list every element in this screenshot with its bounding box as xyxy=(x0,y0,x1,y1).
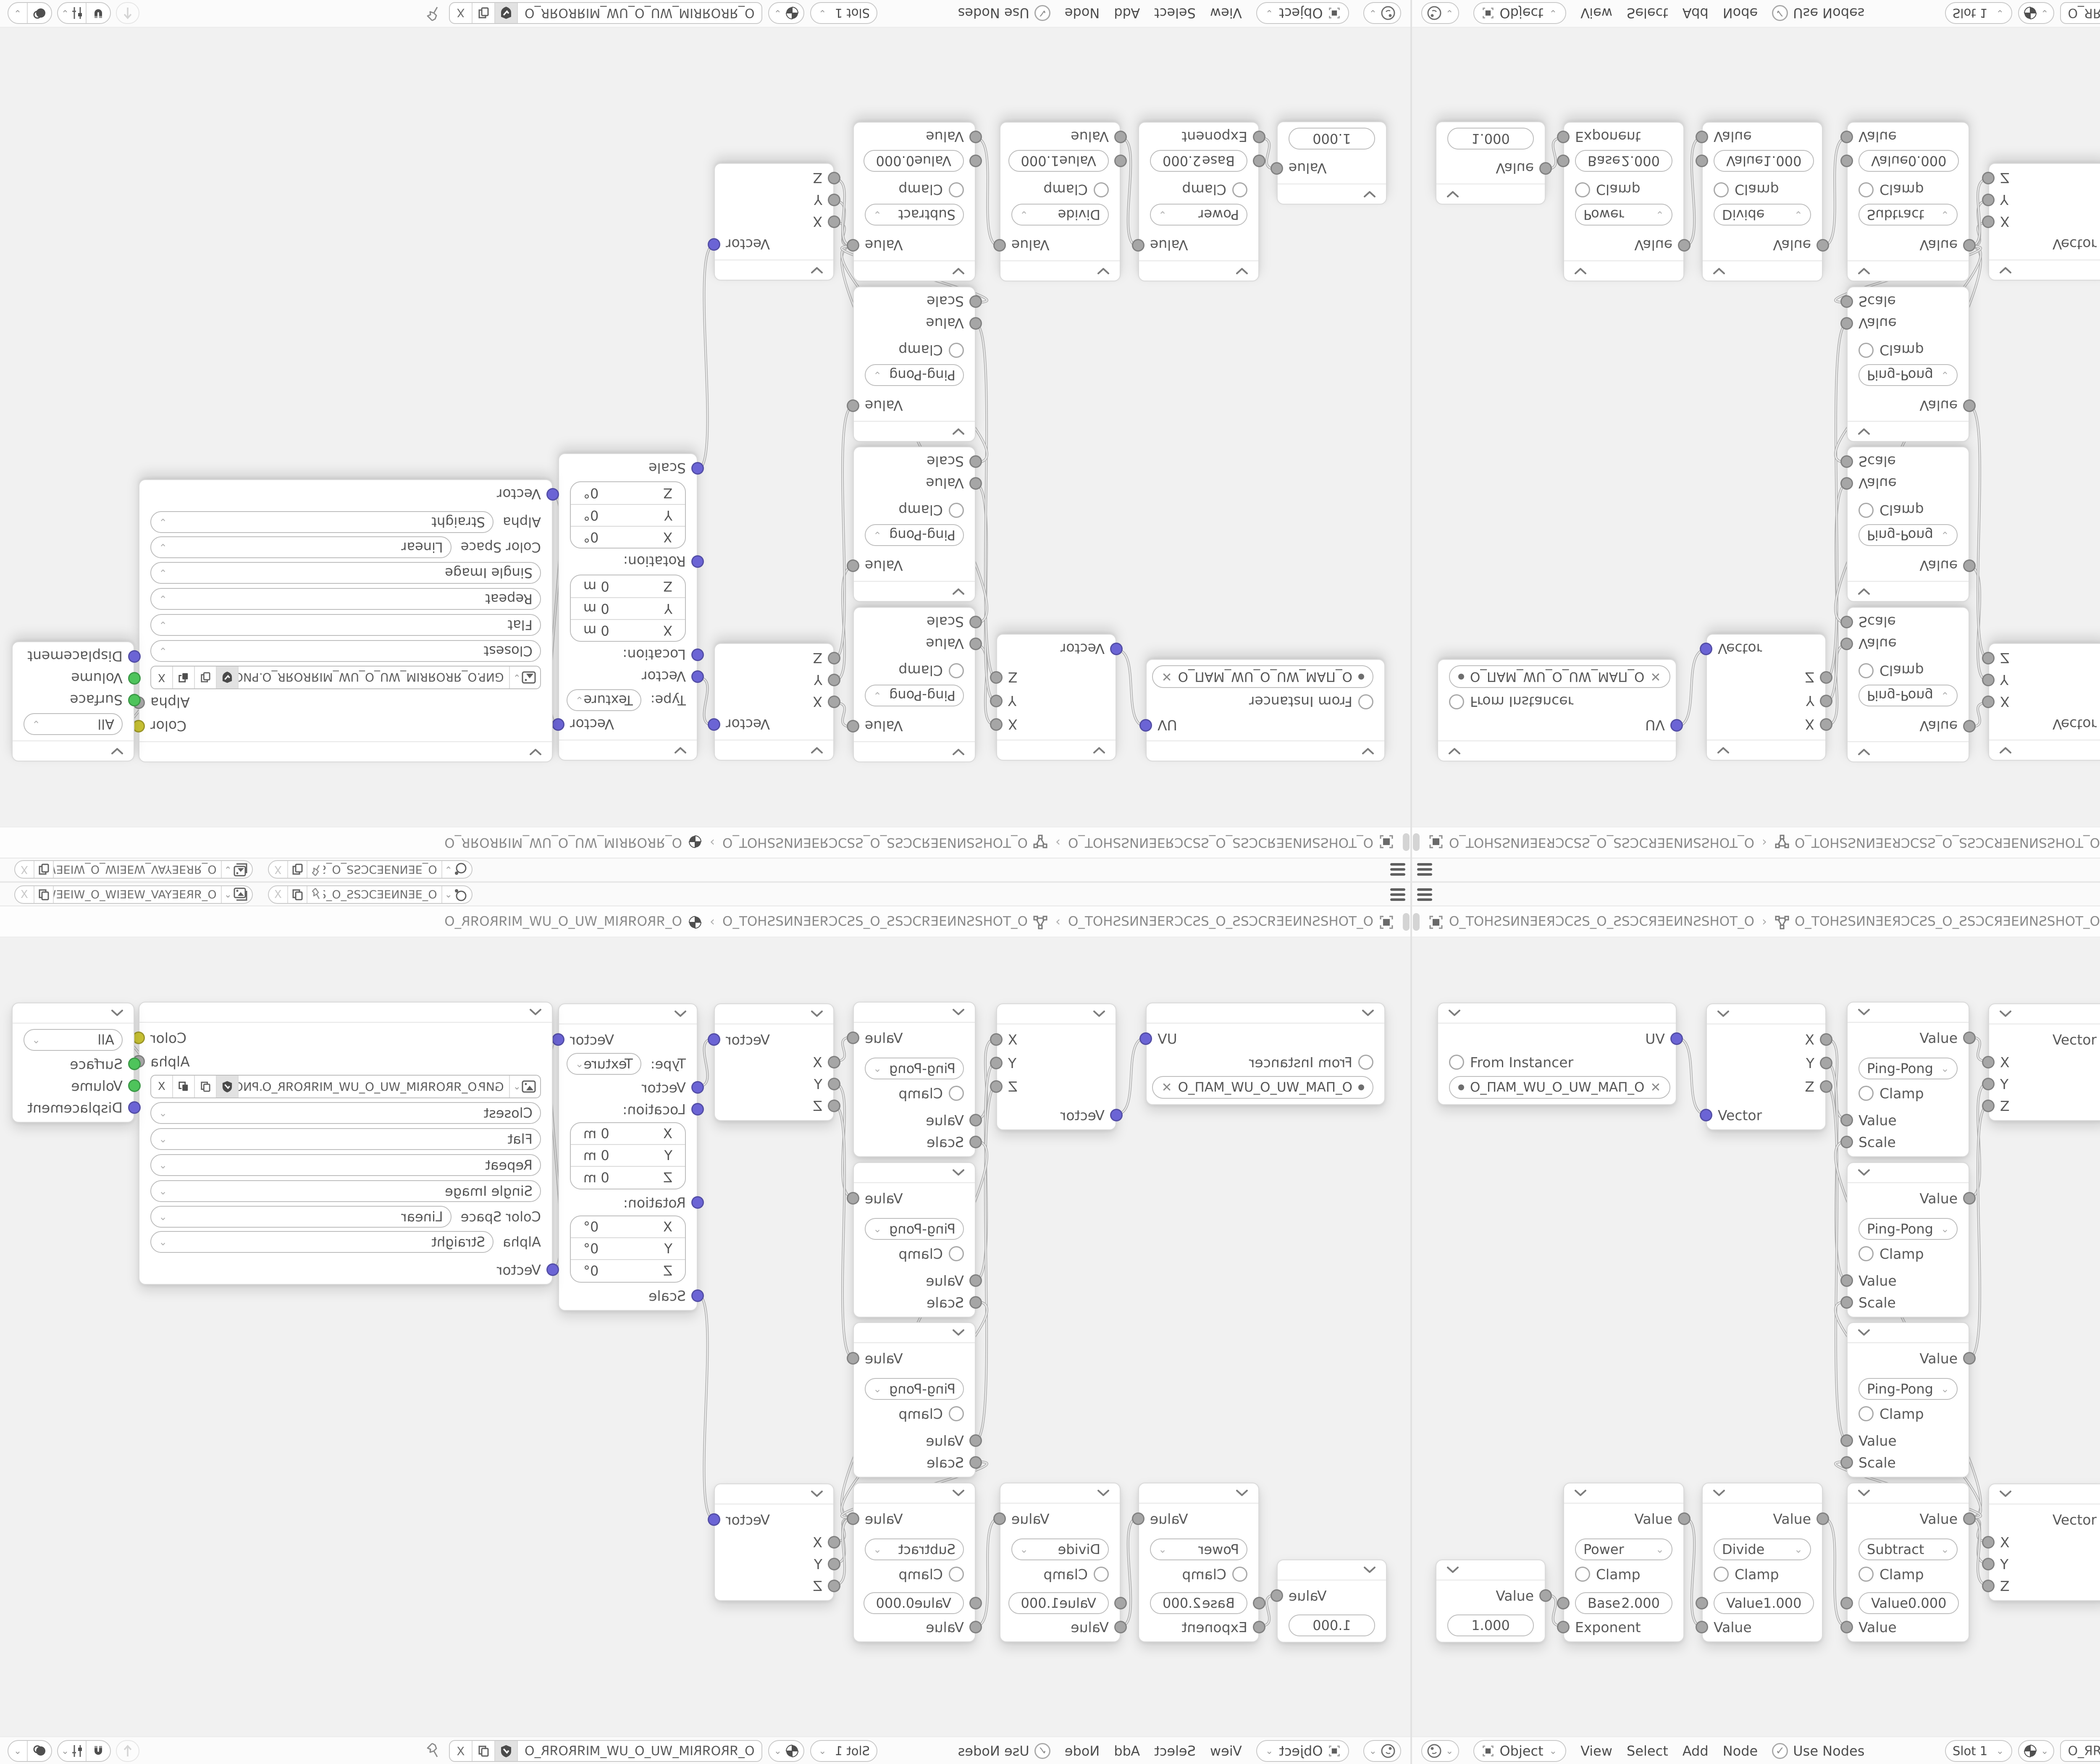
value-socket[interactable] xyxy=(969,638,982,650)
editor-type-button[interactable]: ⌄ xyxy=(1421,1740,1459,1762)
value-node[interactable]: Value1.000 xyxy=(1436,1559,1546,1643)
material-output-node[interactable]: All⌄SurfaceVolumeDisplacement xyxy=(12,1003,134,1123)
node-editor-canvas[interactable]: UVFrom InstancerO_ПAM_WU_O_UW_MAП_O✕XYZV… xyxy=(0,27,1410,827)
math-ping-pong-3-node[interactable]: ValuePing-Pong⌄ClampValueScale xyxy=(1847,286,1969,442)
fake-user-shield-icon[interactable] xyxy=(217,1076,239,1097)
vector-socket[interactable] xyxy=(691,648,704,661)
value-socket[interactable] xyxy=(1840,131,1853,143)
value-socket[interactable] xyxy=(847,720,859,732)
vector-socket[interactable] xyxy=(1139,1032,1152,1045)
menu-node[interactable]: Node xyxy=(1065,1743,1100,1759)
value-socket[interactable] xyxy=(990,718,1003,731)
value-socket[interactable] xyxy=(828,1078,840,1090)
math-ping-pong-1-node[interactable]: ValuePing-Pong⌄ClampValueScale xyxy=(1847,607,1969,762)
node-collapse-chevron-icon[interactable] xyxy=(715,260,833,280)
value-socket[interactable] xyxy=(1114,155,1127,167)
unlink-image-icon[interactable]: X xyxy=(151,667,173,688)
material-name-field[interactable]: O_ЯROЯRIM_WU_O_UW_MIЯROЯR_O X xyxy=(2060,2,2100,24)
math-divide-node[interactable]: ValueDivide⌄ClampValue1.000Value xyxy=(1702,122,1823,281)
fake-user-shield-icon[interactable] xyxy=(495,3,518,23)
value-socket[interactable] xyxy=(1820,1080,1832,1093)
value-socket[interactable] xyxy=(828,1580,840,1592)
new-image-copy-icon[interactable] xyxy=(195,1076,217,1097)
value-socket[interactable] xyxy=(1132,1512,1144,1525)
material-name-field[interactable]: O_ЯROЯRIM_WU_O_UW_MIЯROЯR_O X xyxy=(449,2,762,24)
value-socket[interactable] xyxy=(1840,1274,1853,1287)
vector-socket[interactable] xyxy=(691,670,704,683)
menu-node[interactable]: Node xyxy=(1723,5,1758,21)
node-editor-canvas[interactable]: UVFrom InstancerO_ПAM_WU_O_UW_MAП_O✕XYZV… xyxy=(0,937,1410,1737)
value-socket[interactable] xyxy=(847,239,859,252)
node-collapse-chevron-icon[interactable] xyxy=(1989,260,2100,280)
new-material-copy-icon[interactable] xyxy=(472,1741,495,1761)
value-socket[interactable] xyxy=(1696,155,1708,167)
image-texture-node[interactable]: ColorAlpha ⌄ GИP.O_ЯROЯRIM_WU_O_UW_MIЯRO… xyxy=(139,479,553,762)
value-socket[interactable] xyxy=(1678,1512,1690,1525)
browse-material-button[interactable]: ⌄ xyxy=(768,1740,804,1762)
value-socket[interactable] xyxy=(990,695,1003,707)
node-collapse-chevron-icon[interactable] xyxy=(1564,260,1683,281)
value-socket[interactable] xyxy=(990,1057,1003,1069)
overlays-icon[interactable] xyxy=(27,3,51,23)
node-collapse-chevron-icon[interactable] xyxy=(715,1484,833,1504)
node-collapse-chevron-icon[interactable] xyxy=(1703,1483,1822,1504)
overlays-dropdown[interactable]: ⌄ xyxy=(8,3,27,23)
node-collapse-chevron-icon[interactable] xyxy=(854,1483,975,1504)
fake-user-shield-icon[interactable] xyxy=(495,1741,518,1761)
value-socket[interactable] xyxy=(1820,1057,1832,1069)
node-collapse-chevron-icon[interactable] xyxy=(1848,1003,1969,1023)
vector-socket[interactable] xyxy=(1670,1032,1683,1045)
shader-mode-dropdown[interactable]: Object ⌄ xyxy=(1256,2,1349,24)
math-divide-node[interactable]: ValueDivide⌄ClampValue1.000Value xyxy=(1000,122,1121,281)
menu-add[interactable]: Add xyxy=(1683,5,1709,21)
math-power-node[interactable]: ValuePower⌄ClampBase2.000Exponent xyxy=(1138,1483,1259,1642)
editor-type-button[interactable]: ⌄ xyxy=(1421,2,1459,24)
value-socket[interactable] xyxy=(1270,1589,1283,1602)
node-collapse-chevron-icon[interactable] xyxy=(854,1003,975,1023)
value-socket[interactable] xyxy=(1253,1597,1265,1609)
image-filename[interactable]: GИP.O_ЯROЯRIM_WU_O_UW_MIЯROЯR_O.PNG xyxy=(239,671,509,685)
node-collapse-chevron-icon[interactable] xyxy=(715,740,833,760)
value-socket[interactable] xyxy=(969,1434,982,1447)
browse-material-button[interactable]: ⌄ xyxy=(768,2,804,24)
shader-socket[interactable] xyxy=(128,1058,141,1070)
combine-xyz-1-node[interactable]: VectorXYZ xyxy=(1988,643,2100,761)
value-socket[interactable] xyxy=(1678,239,1690,252)
snap-options-icon[interactable]: ⌄ xyxy=(58,1741,86,1761)
value-socket[interactable] xyxy=(828,674,840,686)
value-socket[interactable] xyxy=(1557,1621,1570,1633)
math-ping-pong-2-node[interactable]: ValuePing-Pong⌄ClampValueScale xyxy=(853,446,976,602)
shader-mode-dropdown[interactable]: Object ⌄ xyxy=(1473,1740,1566,1762)
menu-view[interactable]: View xyxy=(1210,1743,1242,1759)
node-collapse-chevron-icon[interactable] xyxy=(1848,581,1969,601)
node-collapse-chevron-icon[interactable] xyxy=(1707,1004,1825,1024)
fake-user-shield-icon[interactable] xyxy=(217,667,239,688)
new-image-copy-icon[interactable] xyxy=(195,667,217,688)
vector-socket[interactable] xyxy=(546,1263,559,1276)
node-collapse-chevron-icon[interactable] xyxy=(1564,1483,1683,1504)
value-socket[interactable] xyxy=(1982,674,1995,686)
value-socket[interactable] xyxy=(1820,1033,1832,1046)
node-collapse-chevron-icon[interactable] xyxy=(1989,1004,2100,1024)
slot-dropdown[interactable]: Slot 1 ⌄ xyxy=(810,2,877,24)
node-collapse-chevron-icon[interactable] xyxy=(1707,740,1825,760)
combine-xyz-2-node[interactable]: VectorXYZ xyxy=(1988,1483,2100,1601)
node-collapse-chevron-icon[interactable] xyxy=(715,1004,833,1024)
value-socket[interactable] xyxy=(990,671,1003,684)
value-socket[interactable] xyxy=(1840,616,1853,628)
value-socket[interactable] xyxy=(1114,131,1127,143)
editor-type-button[interactable]: ⌄ xyxy=(1363,1740,1401,1762)
value-socket[interactable] xyxy=(1820,718,1832,731)
vector-socket[interactable] xyxy=(708,718,720,731)
menu-node[interactable]: Node xyxy=(1723,1743,1758,1759)
material-name-value[interactable]: O_ЯROЯRIM_WU_O_UW_MIЯROЯR_O xyxy=(518,6,761,21)
uv-map-node[interactable]: UVFrom InstancerO_ПAM_WU_O_UW_MAП_O✕ xyxy=(1437,659,1677,761)
math-ping-pong-1-node[interactable]: ValuePing-Pong⌄ClampValueScale xyxy=(1847,1002,1969,1157)
node-collapse-chevron-icon[interactable] xyxy=(854,1323,975,1343)
snap-magnet-icon[interactable] xyxy=(86,1741,110,1761)
value-socket[interactable] xyxy=(1132,239,1144,252)
snap-magnet-icon[interactable] xyxy=(86,3,110,23)
node-collapse-chevron-icon[interactable] xyxy=(1848,1163,1969,1183)
node-collapse-chevron-icon[interactable] xyxy=(1848,1323,1969,1343)
value-socket[interactable] xyxy=(1963,1512,1976,1525)
value-socket[interactable] xyxy=(1253,1621,1265,1633)
vector-socket[interactable] xyxy=(691,1196,704,1209)
material-name-field[interactable]: O_ЯROЯRIM_WU_O_UW_MIЯROЯR_O X xyxy=(2060,1740,2100,1762)
node-collapse-chevron-icon[interactable] xyxy=(1436,1560,1545,1580)
vector-socket[interactable] xyxy=(691,1081,704,1094)
separate-xyz-node[interactable]: XYZVector xyxy=(996,1003,1116,1130)
vector-socket[interactable] xyxy=(546,488,559,501)
value-socket[interactable] xyxy=(1963,239,1976,252)
uv-map-node[interactable]: UVFrom InstancerO_ПAM_WU_O_UW_MAП_O✕ xyxy=(1146,1003,1385,1105)
value-socket[interactable] xyxy=(1840,455,1853,468)
value-socket[interactable] xyxy=(1253,155,1265,167)
vector-socket[interactable] xyxy=(708,1033,720,1046)
pack-image-icon[interactable] xyxy=(173,667,195,688)
value-socket[interactable] xyxy=(969,1621,982,1633)
node-collapse-chevron-icon[interactable] xyxy=(1147,740,1384,761)
vector-socket[interactable] xyxy=(691,1103,704,1116)
value-socket[interactable] xyxy=(847,399,859,412)
value-socket[interactable] xyxy=(828,194,840,206)
value-socket[interactable] xyxy=(1982,1558,1995,1570)
math-power-node[interactable]: ValuePower⌄ClampBase2.000Exponent xyxy=(1563,122,1684,281)
material-name-value[interactable]: O_ЯROЯRIM_WU_O_UW_MIЯROЯR_O xyxy=(518,1744,761,1759)
menu-view[interactable]: View xyxy=(1580,1743,1612,1759)
separate-xyz-node[interactable]: XYZVector xyxy=(996,634,1116,761)
node-collapse-chevron-icon[interactable] xyxy=(1989,1484,2100,1504)
value-socket[interactable] xyxy=(847,1352,859,1365)
value-socket[interactable] xyxy=(1963,1352,1976,1365)
material-name-field[interactable]: O_ЯROЯRIM_WU_O_UW_MIЯROЯR_O X xyxy=(449,1740,762,1762)
mapping-node[interactable]: VectorType:Texture⌄VectorLocation:X0 mY0… xyxy=(558,1003,698,1311)
value-socket[interactable] xyxy=(1982,1536,1995,1549)
vector-socket[interactable] xyxy=(128,1101,141,1114)
node-collapse-chevron-icon[interactable] xyxy=(1438,1003,1676,1024)
value-socket[interactable] xyxy=(990,1080,1003,1093)
value-socket[interactable] xyxy=(828,172,840,184)
menu-select[interactable]: Select xyxy=(1627,5,1668,21)
node-collapse-chevron-icon[interactable] xyxy=(559,1004,697,1024)
value-socket[interactable] xyxy=(1557,1597,1570,1609)
value-socket[interactable] xyxy=(1982,194,1995,206)
math-power-node[interactable]: ValuePower⌄ClampBase2.000Exponent xyxy=(1138,122,1259,281)
math-subtract-node[interactable]: ValueSubtract⌄ClampValue0.000Value xyxy=(853,122,976,281)
uv-map-node[interactable]: UVFrom InstancerO_ПAM_WU_O_UW_MAП_O✕ xyxy=(1437,1003,1677,1105)
use-nodes-checkbox[interactable]: ✓ Use Nodes xyxy=(958,1743,1050,1759)
material-output-node[interactable]: All⌄SurfaceVolumeDisplacement xyxy=(12,641,134,761)
value-socket[interactable] xyxy=(1696,1597,1708,1609)
value-node[interactable]: Value1.000 xyxy=(1436,121,1546,205)
combine-xyz-1-node[interactable]: VectorXYZ xyxy=(714,1003,834,1121)
vector-socket[interactable] xyxy=(1670,719,1683,732)
value-socket[interactable] xyxy=(1963,1032,1976,1044)
image-filename[interactable]: GИP.O_ЯROЯRIM_WU_O_UW_MIЯROЯR_O.PNG xyxy=(239,1080,509,1094)
vector-socket[interactable] xyxy=(708,1513,720,1526)
unlink-material-icon[interactable]: X xyxy=(450,3,472,23)
menu-select[interactable]: Select xyxy=(1154,1743,1196,1759)
node-collapse-chevron-icon[interactable] xyxy=(1147,1003,1384,1024)
value-socket[interactable] xyxy=(847,1032,859,1044)
value-socket[interactable] xyxy=(1840,1136,1853,1148)
vector-socket[interactable] xyxy=(1700,643,1712,655)
vector-socket[interactable] xyxy=(128,650,141,663)
snap-controls[interactable]: ⌄ xyxy=(57,1740,111,1762)
value-socket[interactable] xyxy=(1253,131,1265,143)
value-socket[interactable] xyxy=(828,1558,840,1570)
pack-image-icon[interactable] xyxy=(173,1076,195,1097)
value-socket[interactable] xyxy=(1982,1078,1995,1090)
menu-node[interactable]: Node xyxy=(1065,5,1100,21)
use-nodes-checkbox[interactable]: ✓ Use Nodes xyxy=(1772,1743,1864,1759)
browse-material-button[interactable]: ⌄ xyxy=(2018,2,2054,24)
slot-dropdown[interactable]: Slot 1 ⌄ xyxy=(1945,2,2012,24)
material-name-value[interactable]: O_ЯROЯRIM_WU_O_UW_MIЯROЯR_O xyxy=(2061,6,2100,21)
value-socket[interactable] xyxy=(1539,1589,1552,1602)
vector-socket[interactable] xyxy=(552,718,564,731)
vector-socket[interactable] xyxy=(1139,719,1152,732)
menu-add[interactable]: Add xyxy=(1114,1743,1140,1759)
menu-add[interactable]: Add xyxy=(1683,1743,1709,1759)
value-node[interactable]: Value1.000 xyxy=(1277,121,1387,205)
node-editor-canvas[interactable]: UVFrom InstancerO_ПAM_WU_O_UW_MAП_O✕XYZV… xyxy=(1412,937,2100,1737)
value-socket[interactable] xyxy=(1982,696,1995,708)
value-socket[interactable] xyxy=(1816,239,1829,252)
node-collapse-chevron-icon[interactable] xyxy=(1989,740,2100,760)
value-socket[interactable] xyxy=(993,1512,1006,1525)
material-name-value[interactable]: O_ЯROЯRIM_WU_O_UW_MIЯROЯR_O xyxy=(2061,1744,2100,1759)
math-power-node[interactable]: ValuePower⌄ClampBase2.000Exponent xyxy=(1563,1483,1684,1642)
node-collapse-chevron-icon[interactable] xyxy=(559,740,697,760)
node-collapse-chevron-icon[interactable] xyxy=(1703,260,1822,281)
value-socket[interactable] xyxy=(828,1056,840,1068)
value-socket[interactable] xyxy=(1820,695,1832,707)
value-socket[interactable] xyxy=(1840,1456,1853,1469)
use-nodes-checkbox[interactable]: ✓ Use Nodes xyxy=(1772,5,1864,21)
value-socket[interactable] xyxy=(828,1536,840,1549)
node-collapse-chevron-icon[interactable] xyxy=(1139,1483,1258,1504)
overlay-controls[interactable]: ⌄ xyxy=(8,1740,52,1762)
value-socket[interactable] xyxy=(969,1274,982,1287)
math-subtract-node[interactable]: ValueSubtract⌄ClampValue0.000Value xyxy=(853,1483,976,1642)
combine-xyz-1-node[interactable]: VectorXYZ xyxy=(714,643,834,761)
menu-select[interactable]: Select xyxy=(1627,1743,1668,1759)
snap-options-icon[interactable]: ⌄ xyxy=(58,3,86,23)
node-collapse-chevron-icon[interactable] xyxy=(1848,421,1969,441)
value-socket[interactable] xyxy=(828,696,840,708)
value-socket[interactable] xyxy=(1982,1056,1995,1068)
pin-icon[interactable] xyxy=(426,4,441,22)
value-socket[interactable] xyxy=(1840,1597,1853,1609)
vector-socket[interactable] xyxy=(552,1033,564,1046)
overlays-dropdown[interactable]: ⌄ xyxy=(8,1741,27,1761)
value-socket[interactable] xyxy=(969,455,982,468)
value-socket[interactable] xyxy=(1270,162,1283,175)
browse-material-button[interactable]: ⌄ xyxy=(2018,1740,2054,1762)
node-collapse-chevron-icon[interactable] xyxy=(1438,740,1676,761)
slot-dropdown[interactable]: Slot 1 ⌄ xyxy=(810,1740,877,1762)
shader-socket[interactable] xyxy=(128,1079,141,1092)
node-collapse-chevron-icon[interactable] xyxy=(139,741,552,761)
math-ping-pong-2-node[interactable]: ValuePing-Pong⌄ClampValueScale xyxy=(1847,1162,1969,1318)
math-divide-node[interactable]: ValueDivide⌄ClampValue1.000Value xyxy=(1702,1483,1823,1642)
node-collapse-chevron-icon[interactable] xyxy=(854,581,975,601)
value-socket[interactable] xyxy=(1114,1621,1127,1633)
math-ping-pong-1-node[interactable]: ValuePing-Pong⌄ClampValueScale xyxy=(853,1002,976,1157)
uv-map-node[interactable]: UVFrom InstancerO_ПAM_WU_O_UW_MAП_O✕ xyxy=(1146,659,1385,761)
node-collapse-chevron-icon[interactable] xyxy=(139,1003,552,1023)
combine-xyz-2-node[interactable]: VectorXYZ xyxy=(714,1483,834,1601)
value-socket[interactable] xyxy=(1820,671,1832,684)
node-collapse-chevron-icon[interactable] xyxy=(1000,260,1120,281)
value-socket[interactable] xyxy=(1840,1434,1853,1447)
node-collapse-chevron-icon[interactable] xyxy=(854,260,975,281)
value-socket[interactable] xyxy=(1840,1296,1853,1309)
value-socket[interactable] xyxy=(969,616,982,628)
value-socket[interactable] xyxy=(993,239,1006,252)
image-texture-node[interactable]: ColorAlpha ⌄ GИP.O_ЯROЯRIM_WU_O_UW_MIЯRO… xyxy=(139,1002,553,1285)
shader-socket[interactable] xyxy=(128,672,141,685)
unlink-image-icon[interactable]: X xyxy=(151,1076,173,1097)
unlink-material-icon[interactable]: X xyxy=(450,1741,472,1761)
value-socket[interactable] xyxy=(969,477,982,490)
math-subtract-node[interactable]: ValueSubtract⌄ClampValue0.000Value xyxy=(1847,1483,1969,1642)
value-node[interactable]: Value1.000 xyxy=(1277,1559,1387,1643)
value-socket[interactable] xyxy=(1557,131,1570,143)
node-collapse-chevron-icon[interactable] xyxy=(997,740,1116,760)
node-editor-canvas[interactable]: UVFrom InstancerO_ПAM_WU_O_UW_MAП_O✕XYZV… xyxy=(1412,27,2100,827)
node-collapse-chevron-icon[interactable] xyxy=(1139,260,1258,281)
value-socket[interactable] xyxy=(1840,155,1853,167)
node-collapse-chevron-icon[interactable] xyxy=(13,740,134,761)
value-socket[interactable] xyxy=(969,1456,982,1469)
value-socket[interactable] xyxy=(1982,172,1995,184)
value-socket[interactable] xyxy=(1539,162,1552,175)
vector-socket[interactable] xyxy=(1700,1109,1712,1121)
vector-socket[interactable] xyxy=(708,238,720,251)
math-ping-pong-1-node[interactable]: ValuePing-Pong⌄ClampValueScale xyxy=(853,607,976,762)
vector-socket[interactable] xyxy=(1110,1109,1123,1121)
value-socket[interactable] xyxy=(1982,215,1995,228)
math-ping-pong-3-node[interactable]: ValuePing-Pong⌄ClampValueScale xyxy=(1847,1322,1969,1478)
menu-view[interactable]: View xyxy=(1580,5,1612,21)
value-socket[interactable] xyxy=(1840,638,1853,650)
value-socket[interactable] xyxy=(1840,1114,1853,1126)
value-socket[interactable] xyxy=(1982,1100,1995,1112)
node-collapse-chevron-icon[interactable] xyxy=(854,1163,975,1183)
value-socket[interactable] xyxy=(1557,155,1570,167)
node-collapse-chevron-icon[interactable] xyxy=(13,1003,134,1024)
separate-xyz-node[interactable]: XYZVector xyxy=(1706,1003,1826,1130)
editor-type-button[interactable]: ⌄ xyxy=(1363,2,1401,24)
shader-socket[interactable] xyxy=(128,694,141,706)
use-nodes-checkbox[interactable]: ✓ Use Nodes xyxy=(958,5,1050,21)
value-socket[interactable] xyxy=(828,1100,840,1112)
slot-dropdown[interactable]: Slot 1 ⌄ xyxy=(1945,1740,2012,1762)
value-socket[interactable] xyxy=(828,215,840,228)
overlays-icon[interactable] xyxy=(27,1741,51,1761)
node-collapse-chevron-icon[interactable] xyxy=(854,741,975,761)
vector-socket[interactable] xyxy=(1110,643,1123,655)
math-ping-pong-2-node[interactable]: ValuePing-Pong⌄ClampValueScale xyxy=(1847,446,1969,602)
value-socket[interactable] xyxy=(1840,295,1853,308)
menu-add[interactable]: Add xyxy=(1114,5,1140,21)
value-socket[interactable] xyxy=(828,652,840,664)
value-socket[interactable] xyxy=(969,155,982,167)
menu-view[interactable]: View xyxy=(1210,5,1242,21)
overlay-controls[interactable]: ⌄ xyxy=(8,2,52,24)
node-collapse-chevron-icon[interactable] xyxy=(1848,741,1969,761)
math-ping-pong-3-node[interactable]: ValuePing-Pong⌄ClampValueScale xyxy=(853,286,976,442)
shader-mode-dropdown[interactable]: Object ⌄ xyxy=(1256,1740,1349,1762)
separate-xyz-node[interactable]: XYZVector xyxy=(1706,634,1826,761)
math-ping-pong-3-node[interactable]: ValuePing-Pong⌄ClampValueScale xyxy=(853,1322,976,1478)
value-socket[interactable] xyxy=(847,1512,859,1525)
parent-node-tree-button[interactable] xyxy=(116,1740,139,1762)
parent-node-tree-button[interactable] xyxy=(116,2,139,24)
node-collapse-chevron-icon[interactable] xyxy=(1000,1483,1120,1504)
vector-socket[interactable] xyxy=(691,462,704,475)
vector-socket[interactable] xyxy=(691,555,704,568)
value-socket[interactable] xyxy=(1114,1597,1127,1609)
combine-xyz-2-node[interactable]: VectorXYZ xyxy=(1988,163,2100,281)
value-socket[interactable] xyxy=(1982,652,1995,664)
node-collapse-chevron-icon[interactable] xyxy=(1848,260,1969,281)
value-socket[interactable] xyxy=(969,317,982,330)
value-socket[interactable] xyxy=(969,1296,982,1309)
value-socket[interactable] xyxy=(990,1033,1003,1046)
menu-select[interactable]: Select xyxy=(1154,5,1196,21)
value-socket[interactable] xyxy=(1982,1580,1995,1592)
combine-xyz-1-node[interactable]: VectorXYZ xyxy=(1988,1003,2100,1121)
value-socket[interactable] xyxy=(847,559,859,572)
node-collapse-chevron-icon[interactable] xyxy=(1436,184,1545,204)
value-socket[interactable] xyxy=(969,1114,982,1126)
vector-socket[interactable] xyxy=(691,1289,704,1302)
value-socket[interactable] xyxy=(847,1192,859,1205)
node-collapse-chevron-icon[interactable] xyxy=(1278,1560,1386,1580)
shader-mode-dropdown[interactable]: Object ⌄ xyxy=(1473,2,1566,24)
math-subtract-node[interactable]: ValueSubtract⌄ClampValue0.000Value xyxy=(1847,122,1969,281)
value-socket[interactable] xyxy=(1963,559,1976,572)
value-socket[interactable] xyxy=(1963,1192,1976,1205)
node-collapse-chevron-icon[interactable] xyxy=(1278,184,1386,204)
